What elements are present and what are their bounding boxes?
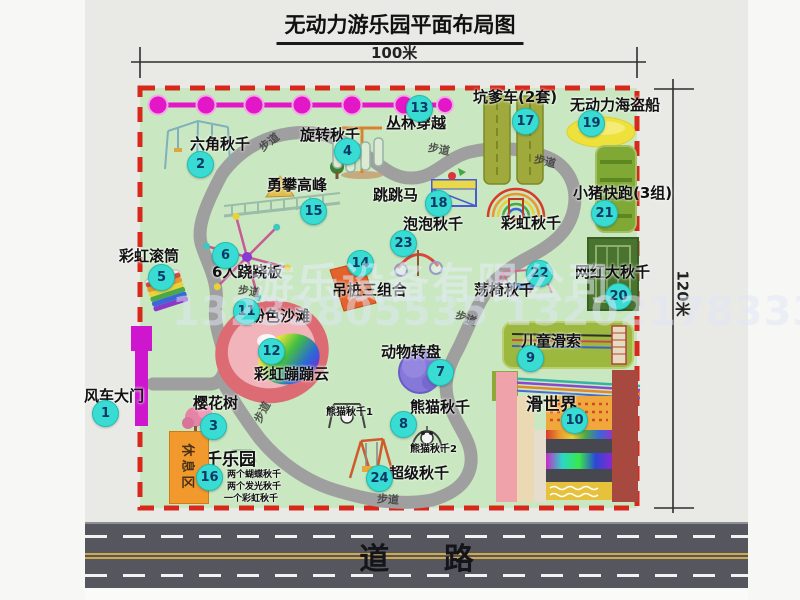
rest-area-label: 休息区 [180, 443, 199, 491]
label-rainbow-roller: 彩虹滚筒 [119, 245, 179, 266]
label-hanging-pile: 吊桩三组合 [332, 279, 407, 300]
badge-21: 21 [591, 200, 618, 227]
badge-19: 19 [578, 110, 605, 137]
badge-11: 11 [233, 298, 260, 325]
label-animal-turntable: 动物转盘 [381, 341, 441, 362]
label-panda-swing-2: 熊猫秋千2 [410, 440, 457, 455]
label-climbing-peak: 勇攀高峰 [267, 174, 327, 195]
height-dimension-label: 120米 [673, 270, 694, 316]
badge-14: 14 [347, 250, 374, 277]
trail-label: 步道 [376, 490, 399, 507]
park-plan-figure: 无动力游乐园平面布局图 100米 120米 [0, 0, 800, 600]
label-cherry-tree: 樱花树 [193, 392, 238, 413]
road: 道 路 [85, 522, 748, 590]
width-dimension-label: 100米 [371, 42, 417, 63]
label-pit-cars: 坑爹车(2套) [473, 86, 557, 107]
label-jump-horse: 跳跳马 [373, 184, 418, 205]
badge-24: 24 [366, 465, 393, 492]
badge-20: 20 [605, 283, 632, 310]
badge-6: 6 [212, 242, 239, 269]
label-rainbow-swing: 彩虹秋千 [501, 212, 561, 233]
badge-16: 16 [196, 464, 223, 491]
badge-18: 18 [425, 190, 452, 217]
swing-park-detail-3: 一个彩虹秋千 [224, 491, 278, 504]
label-panda-swing-1: 熊猫秋千1 [326, 403, 373, 418]
badge-9: 9 [517, 345, 544, 372]
badge-7: 7 [427, 359, 454, 386]
badge-22: 22 [526, 260, 553, 287]
badge-3: 3 [200, 413, 227, 440]
label-big-swing: 网红大秋千 [575, 261, 650, 282]
badge-2: 2 [187, 151, 214, 178]
badge-15: 15 [300, 198, 327, 225]
label-swing-chair: 荡椅秋千 [474, 279, 534, 300]
badge-1: 1 [92, 400, 119, 427]
badge-10: 10 [561, 407, 588, 434]
badge-8: 8 [390, 411, 417, 438]
badge-17: 17 [512, 108, 539, 135]
badge-23: 23 [390, 230, 417, 257]
badge-4: 4 [334, 138, 361, 165]
badge-13: 13 [406, 95, 433, 122]
badge-12: 12 [258, 338, 285, 365]
badge-5: 5 [148, 264, 175, 291]
label-rainbow-cloud: 彩虹蹦蹦云 [254, 363, 329, 384]
road-label: 道 路 [85, 524, 748, 588]
page-title: 无动力游乐园平面布局图 [277, 9, 524, 45]
label-panda-swing: 熊猫秋千 [410, 396, 470, 417]
bottom-margin [85, 588, 748, 600]
label-pig-run: 小猪快跑(3组) [573, 182, 672, 203]
label-super-swing: 超级秋千 [389, 462, 449, 483]
